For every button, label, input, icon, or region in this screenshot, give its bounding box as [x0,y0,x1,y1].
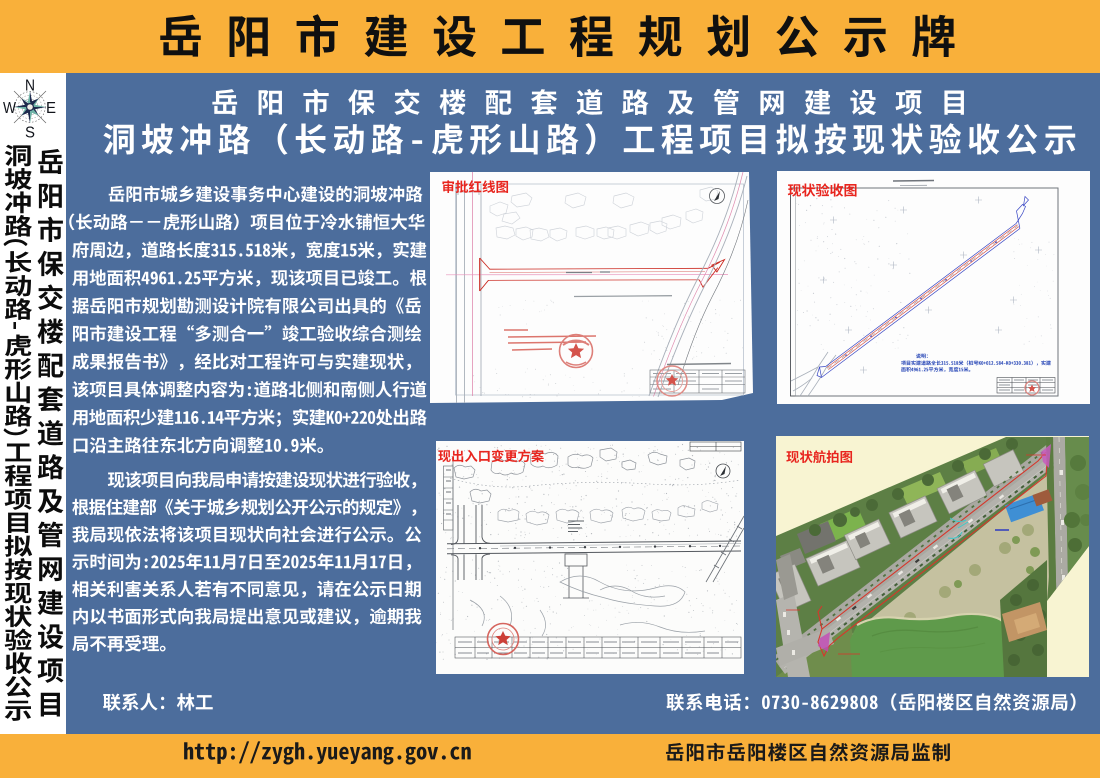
svg-text:W: W [3,100,16,117]
svg-text:N: N [25,78,35,95]
svg-text:S: S [25,125,35,142]
svg-text:E: E [46,100,56,117]
